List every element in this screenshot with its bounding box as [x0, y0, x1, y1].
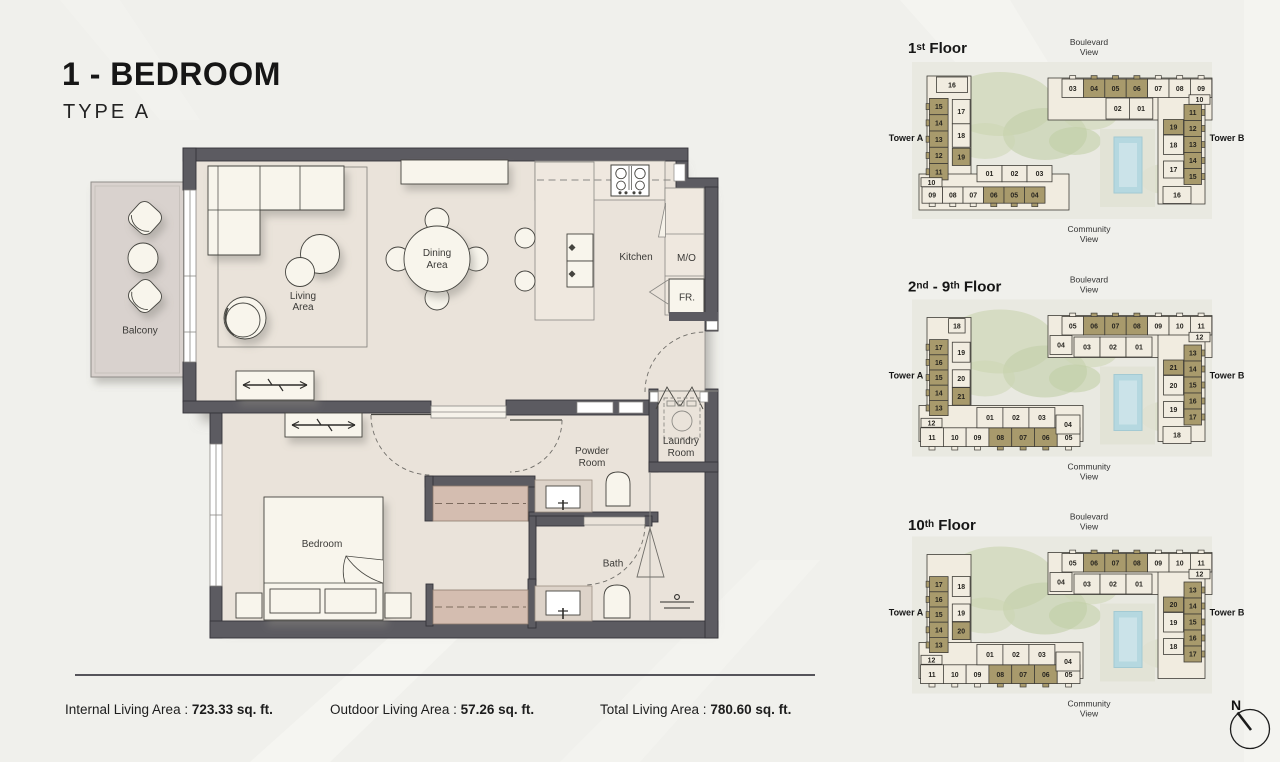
- svg-text:02: 02: [1011, 171, 1019, 178]
- svg-text:03: 03: [1038, 652, 1046, 659]
- svg-text:17: 17: [1189, 652, 1197, 659]
- svg-text:07: 07: [1019, 672, 1027, 679]
- svg-text:FR.: FR.: [679, 293, 695, 304]
- svg-text:10: 10: [1196, 97, 1204, 104]
- svg-text:12: 12: [935, 153, 943, 160]
- svg-text:Balcony: Balcony: [122, 326, 158, 337]
- svg-text:Boulevard: Boulevard: [1070, 275, 1109, 285]
- svg-text:14: 14: [935, 121, 943, 128]
- svg-text:07: 07: [1154, 86, 1162, 93]
- svg-text:13: 13: [1189, 142, 1197, 149]
- svg-text:15: 15: [1189, 383, 1197, 390]
- svg-text:21: 21: [957, 394, 965, 401]
- svg-text:11: 11: [1189, 110, 1196, 117]
- svg-text:Tower B: Tower B: [1210, 608, 1245, 618]
- svg-text:08: 08: [949, 193, 957, 200]
- svg-text:15: 15: [935, 104, 943, 111]
- svg-text:05: 05: [1112, 86, 1120, 93]
- svg-text:14: 14: [935, 390, 943, 397]
- svg-text:09: 09: [1154, 323, 1162, 330]
- svg-text:01: 01: [1137, 106, 1145, 113]
- svg-text:17: 17: [935, 345, 943, 352]
- svg-text:21: 21: [1170, 365, 1178, 372]
- svg-text:16: 16: [935, 597, 943, 604]
- svg-text:01: 01: [986, 171, 994, 178]
- svg-text:Powder: Powder: [575, 446, 610, 457]
- svg-text:04: 04: [1057, 580, 1065, 587]
- svg-text:04: 04: [1031, 193, 1039, 200]
- svg-text:15: 15: [935, 375, 943, 382]
- svg-text:17: 17: [957, 109, 965, 116]
- svg-text:View: View: [1080, 234, 1099, 244]
- svg-text:11: 11: [1197, 323, 1204, 330]
- svg-text:Room: Room: [579, 458, 606, 469]
- svg-text:14: 14: [1189, 367, 1197, 374]
- svg-text:10: 10: [928, 180, 936, 187]
- svg-text:05: 05: [1065, 672, 1073, 679]
- svg-text:08: 08: [1176, 86, 1184, 93]
- svg-text:02: 02: [1109, 345, 1117, 352]
- svg-text:20: 20: [957, 628, 965, 635]
- svg-text:M/O: M/O: [677, 253, 696, 264]
- svg-text:18: 18: [1170, 142, 1178, 149]
- svg-text:18: 18: [957, 133, 965, 140]
- svg-text:17: 17: [935, 582, 943, 589]
- svg-text:04: 04: [1064, 422, 1072, 429]
- svg-text:15: 15: [935, 612, 943, 619]
- svg-text:01: 01: [1135, 345, 1143, 352]
- svg-text:Tower A: Tower A: [889, 371, 924, 381]
- svg-text:06: 06: [1042, 672, 1050, 679]
- svg-text:2nd - 9th Floor: 2nd - 9th Floor: [908, 279, 1002, 296]
- svg-text:16: 16: [1189, 636, 1197, 643]
- svg-text:Community: Community: [1068, 224, 1112, 234]
- svg-text:06: 06: [1090, 323, 1098, 330]
- svg-text:09: 09: [974, 435, 982, 442]
- svg-text:Room: Room: [668, 448, 695, 459]
- svg-text:10th Floor: 10th Floor: [908, 517, 976, 534]
- svg-text:N: N: [1231, 697, 1241, 713]
- svg-text:Dining: Dining: [423, 248, 451, 259]
- svg-text:1st Floor: 1st Floor: [908, 40, 967, 57]
- svg-text:12: 12: [1189, 126, 1197, 133]
- svg-text:Kitchen: Kitchen: [619, 252, 652, 263]
- svg-text:04: 04: [1057, 343, 1065, 350]
- svg-text:18: 18: [953, 323, 961, 330]
- svg-text:01: 01: [1135, 582, 1143, 589]
- svg-text:Area: Area: [292, 302, 314, 313]
- svg-text:11: 11: [1197, 560, 1204, 567]
- svg-text:16: 16: [1189, 399, 1197, 406]
- svg-text:18: 18: [1170, 644, 1178, 651]
- svg-text:View: View: [1080, 472, 1099, 482]
- svg-text:17: 17: [1189, 415, 1197, 422]
- svg-text:View: View: [1080, 709, 1099, 719]
- svg-text:04: 04: [1064, 659, 1072, 666]
- svg-text:02: 02: [1012, 652, 1020, 659]
- svg-text:Bath: Bath: [603, 559, 624, 570]
- svg-text:Living: Living: [290, 291, 316, 302]
- svg-text:06: 06: [1133, 86, 1141, 93]
- svg-text:17: 17: [1170, 167, 1178, 174]
- svg-text:03: 03: [1083, 345, 1091, 352]
- svg-text:09: 09: [1197, 86, 1205, 93]
- svg-text:View: View: [1080, 522, 1099, 532]
- svg-text:13: 13: [935, 406, 943, 413]
- svg-text:Community: Community: [1068, 699, 1112, 709]
- svg-text:05: 05: [1069, 323, 1077, 330]
- svg-text:10: 10: [951, 672, 959, 679]
- svg-text:18: 18: [1173, 433, 1181, 440]
- svg-text:10: 10: [1176, 323, 1184, 330]
- svg-text:07: 07: [969, 193, 977, 200]
- svg-text:19: 19: [957, 350, 965, 357]
- svg-text:10: 10: [951, 435, 959, 442]
- svg-text:16: 16: [948, 82, 956, 89]
- svg-text:08: 08: [1133, 323, 1141, 330]
- svg-text:05: 05: [1069, 560, 1077, 567]
- svg-text:20: 20: [957, 376, 965, 383]
- svg-text:09: 09: [974, 672, 982, 679]
- svg-text:12: 12: [928, 420, 936, 427]
- svg-text:13: 13: [935, 137, 943, 144]
- svg-text:19: 19: [957, 610, 965, 617]
- svg-text:12: 12: [1196, 572, 1204, 579]
- svg-text:14: 14: [1189, 158, 1197, 165]
- svg-text:01: 01: [986, 652, 994, 659]
- svg-text:18: 18: [957, 584, 965, 591]
- svg-text:Boulevard: Boulevard: [1070, 512, 1109, 522]
- svg-text:11: 11: [928, 435, 935, 442]
- svg-text:13: 13: [935, 643, 943, 650]
- svg-text:02: 02: [1114, 106, 1122, 113]
- svg-text:07: 07: [1019, 435, 1027, 442]
- svg-text:Tower A: Tower A: [889, 133, 924, 143]
- svg-text:15: 15: [1189, 174, 1197, 181]
- svg-text:05: 05: [1010, 193, 1018, 200]
- svg-text:10: 10: [1176, 560, 1184, 567]
- svg-text:09: 09: [928, 193, 936, 200]
- svg-text:Tower B: Tower B: [1210, 371, 1245, 381]
- svg-text:Tower A: Tower A: [889, 608, 924, 618]
- svg-text:02: 02: [1012, 415, 1020, 422]
- svg-text:03: 03: [1083, 582, 1091, 589]
- svg-text:15: 15: [1189, 620, 1197, 627]
- svg-text:02: 02: [1109, 582, 1117, 589]
- svg-text:Tower B: Tower B: [1210, 133, 1245, 143]
- svg-text:08: 08: [996, 672, 1004, 679]
- svg-text:14: 14: [935, 627, 943, 634]
- svg-text:12: 12: [1196, 335, 1204, 342]
- svg-text:11: 11: [928, 672, 935, 679]
- svg-text:16: 16: [1173, 193, 1181, 200]
- svg-text:06: 06: [1090, 560, 1098, 567]
- svg-text:19: 19: [1170, 125, 1178, 132]
- svg-text:07: 07: [1112, 560, 1120, 567]
- svg-text:19: 19: [1170, 407, 1178, 414]
- svg-text:Community: Community: [1068, 462, 1112, 472]
- svg-text:03: 03: [1038, 415, 1046, 422]
- svg-text:20: 20: [1170, 383, 1178, 390]
- svg-text:Laundry: Laundry: [663, 436, 699, 447]
- svg-text:01: 01: [986, 415, 994, 422]
- svg-text:13: 13: [1189, 351, 1197, 358]
- svg-text:08: 08: [996, 435, 1004, 442]
- svg-text:03: 03: [1036, 171, 1044, 178]
- svg-text:06: 06: [990, 193, 998, 200]
- svg-text:06: 06: [1042, 435, 1050, 442]
- svg-text:Bedroom: Bedroom: [302, 539, 343, 550]
- svg-text:07: 07: [1112, 323, 1120, 330]
- svg-text:08: 08: [1133, 560, 1141, 567]
- svg-text:03: 03: [1069, 86, 1077, 93]
- svg-text:20: 20: [1170, 602, 1178, 609]
- svg-text:05: 05: [1065, 435, 1073, 442]
- svg-text:11: 11: [935, 169, 942, 176]
- svg-text:04: 04: [1090, 86, 1098, 93]
- svg-text:19: 19: [1170, 620, 1178, 627]
- svg-text:09: 09: [1154, 560, 1162, 567]
- svg-text:13: 13: [1189, 588, 1197, 595]
- svg-text:View: View: [1080, 285, 1099, 295]
- svg-text:Boulevard: Boulevard: [1070, 37, 1109, 47]
- svg-text:Area: Area: [426, 260, 448, 271]
- svg-text:19: 19: [957, 154, 965, 161]
- svg-text:View: View: [1080, 47, 1099, 57]
- svg-text:14: 14: [1189, 604, 1197, 611]
- svg-text:16: 16: [935, 360, 943, 367]
- svg-text:12: 12: [928, 657, 936, 664]
